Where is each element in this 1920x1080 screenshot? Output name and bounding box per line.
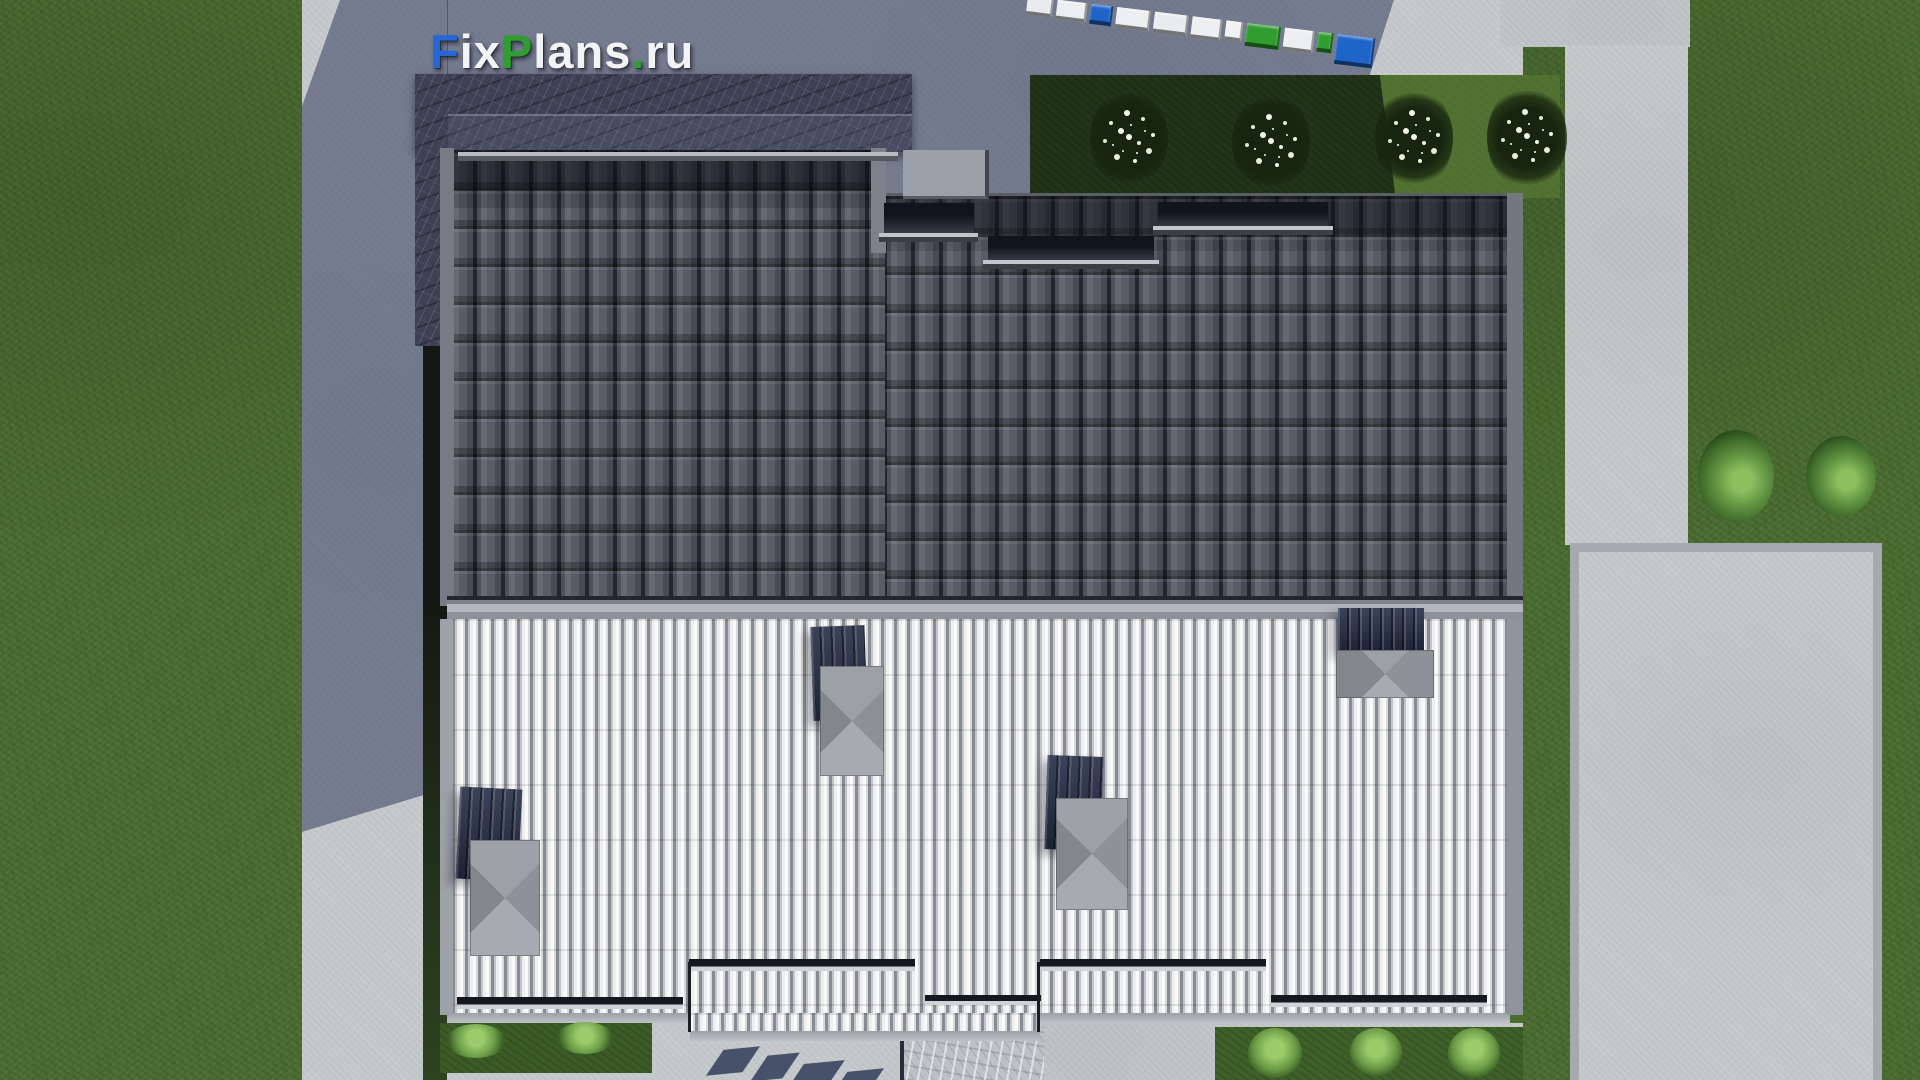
letter-shadow xyxy=(838,1068,884,1080)
snow-guard-bar xyxy=(1271,995,1487,1007)
snow-guard-bar xyxy=(925,995,1041,1005)
logo-block-icon xyxy=(1026,0,1054,18)
snow-guard-bar xyxy=(1040,959,1266,971)
watermark-letter: . xyxy=(631,25,645,78)
skylight-pyramid-icon xyxy=(470,840,540,956)
roof-trim xyxy=(1507,193,1523,606)
roof-light-notch-extension xyxy=(690,1013,1040,1033)
snow-guard-bar xyxy=(458,152,898,161)
snow-guard-bar xyxy=(879,233,978,242)
snow-guard-bar xyxy=(1153,226,1333,235)
skylight-pyramid-icon xyxy=(1336,650,1434,698)
sidewalk-top-right xyxy=(1500,0,1690,47)
logo-block-icon xyxy=(1224,20,1243,42)
walkway-right xyxy=(1565,45,1688,545)
watermark-letter: ix xyxy=(460,25,501,78)
snow-guard-bar xyxy=(457,997,683,1009)
watermark-letter: lans xyxy=(533,25,631,78)
watermark-letter: P xyxy=(501,25,533,78)
skylight-pyramid-icon xyxy=(1056,798,1128,910)
eave-band xyxy=(1040,1013,1510,1023)
eave-band xyxy=(447,1013,690,1023)
lawn-left xyxy=(0,0,303,1080)
logo-block-icon xyxy=(1316,32,1333,54)
chimney-panel-icon xyxy=(1338,608,1424,652)
logo-block-icon xyxy=(1334,34,1375,68)
small-bush-icon xyxy=(556,1022,614,1054)
logo-block-icon xyxy=(1245,23,1282,50)
roof-trim xyxy=(440,619,453,1015)
logo-block-icon xyxy=(1089,4,1113,27)
roof-step-platform xyxy=(903,150,989,199)
aerial-render-scene: FixPlans.ru xyxy=(0,0,1920,1080)
small-bush-icon xyxy=(446,1024,506,1058)
skylight-pyramid-icon xyxy=(820,666,884,776)
watermark-logo: FixPlans.ru xyxy=(430,24,694,79)
patio-pad-right xyxy=(1570,543,1882,1080)
flowering-bush-icon xyxy=(1487,85,1567,190)
letter-shadows xyxy=(716,1040,906,1080)
stone-parapet-top xyxy=(415,74,912,152)
roof-dark-section-right xyxy=(885,193,1523,609)
small-bush-icon xyxy=(1448,1028,1500,1078)
parapet-ledge xyxy=(429,114,912,154)
logo-block-icon xyxy=(1055,0,1087,23)
logo-block-icon xyxy=(1115,7,1151,32)
logo-block-icon xyxy=(1152,12,1188,37)
roof-trim xyxy=(440,148,454,606)
flowering-bush-icon xyxy=(1232,92,1310,192)
logo-block-icon xyxy=(1190,16,1222,41)
roof-trim xyxy=(1507,619,1523,1015)
roof-notch-edge xyxy=(1037,962,1040,1032)
flowering-bush-icon xyxy=(1090,88,1168,188)
roof-notch-edge xyxy=(688,962,691,1032)
snow-guard-bar xyxy=(983,260,1159,269)
watermark-letter: F xyxy=(430,25,460,78)
letter-shadow xyxy=(789,1060,845,1080)
letter-shadow xyxy=(750,1053,800,1080)
small-bush-icon xyxy=(1248,1028,1302,1078)
roof-dark-section-left xyxy=(447,150,885,606)
flowering-bush-icon xyxy=(1375,88,1453,188)
snow-guard-bar xyxy=(689,959,915,971)
green-bush-icon xyxy=(1698,430,1774,522)
logo-block-icon xyxy=(1282,28,1315,54)
green-bush-icon xyxy=(1806,436,1876,516)
watermark-letter: ru xyxy=(645,25,694,78)
small-bush-icon xyxy=(1350,1028,1402,1076)
